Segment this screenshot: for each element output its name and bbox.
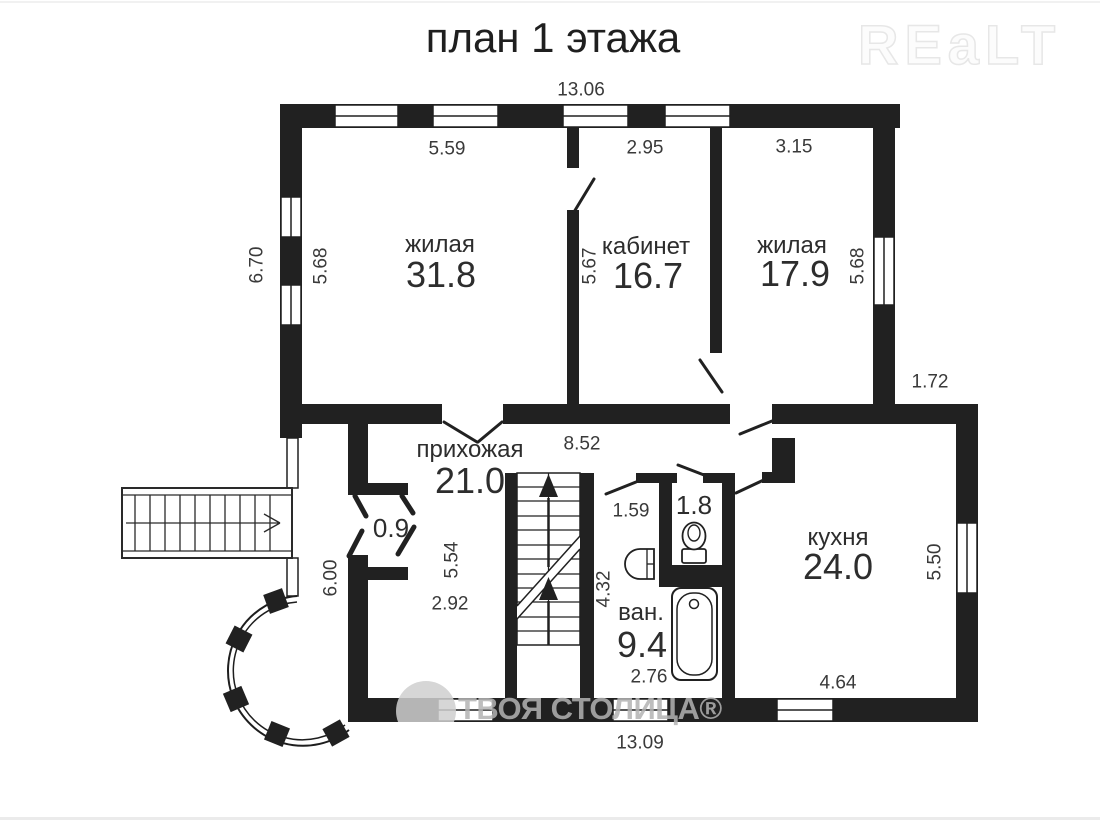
dim-bath-width: 2.76: [631, 668, 668, 687]
top-edge-line: [0, 1, 1100, 3]
wall-hall-step-bottom: [368, 567, 408, 580]
window-top-4: [665, 105, 730, 127]
dim-bath-door-width: 1.59: [613, 502, 650, 521]
watermark-logo-circle: [396, 681, 456, 741]
door-kitchen-upper: [740, 421, 772, 434]
wall-middle-right: [772, 404, 873, 424]
dim-bottom-width: 13.09: [616, 734, 664, 753]
door-living1-office: [574, 179, 594, 212]
room-area-kitchen: 24.0: [803, 549, 873, 585]
interior-stairs: [517, 473, 580, 645]
dim-left-height: 6.70: [248, 247, 267, 284]
sink-icon: [625, 549, 654, 579]
window-left-2: [281, 285, 301, 325]
rotunda-outer-arc: [228, 596, 349, 746]
room-area-porch: 0.9: [373, 515, 409, 541]
room-label-bath: ван.: [618, 601, 664, 625]
rotunda-bay: [223, 588, 350, 747]
window-top-1: [335, 105, 398, 127]
room-area-bath: 9.4: [617, 627, 667, 663]
door-bath: [606, 482, 636, 494]
dim-living2-width: 3.15: [776, 138, 813, 157]
dim-living1-height: 5.68: [312, 248, 331, 285]
wall-stair-right: [580, 473, 594, 698]
rotunda-inner-arc: [233, 602, 345, 740]
dim-living1-width: 5.59: [429, 140, 466, 159]
wall-middle-b: [503, 404, 730, 424]
room-area-wc: 1.8: [676, 492, 712, 518]
door-wc: [678, 465, 704, 475]
wall-wc-south: [659, 565, 735, 587]
room-area-living1: 31.8: [406, 257, 476, 293]
dim-hall-inner-width: 2.92: [432, 595, 469, 614]
room-area-office: 16.7: [613, 258, 683, 294]
dim-right-step: 1.72: [912, 373, 949, 392]
dim-living2-height: 5.68: [849, 248, 868, 285]
door-kitchen-lower: [736, 478, 768, 493]
page-title: план 1 этажа: [426, 17, 681, 59]
dim-hall-inner-height: 5.54: [443, 542, 462, 579]
room-label-hall: прихожая: [417, 438, 524, 462]
floor-plan-canvas: REaLT: [0, 0, 1100, 825]
dim-office-width: 2.95: [627, 139, 664, 158]
door-office-living2: [700, 360, 722, 392]
toilet-icon: [682, 523, 706, 564]
rotunda-posts: [223, 588, 350, 747]
porch-wall-ne: [355, 496, 366, 516]
exterior-stairs: [122, 488, 292, 558]
dim-office-height: 5.67: [581, 248, 600, 285]
porch-wall-se: [402, 496, 413, 513]
porch-wall-nw: [349, 531, 362, 556]
bottom-edge-line: [0, 817, 1100, 820]
porch-screen-lower: [287, 558, 298, 596]
window-kitchen-east: [957, 523, 977, 593]
watermark-text: ТВОЯ СТОЛИЦА®: [458, 691, 722, 726]
wall-partition-living1-office-a: [567, 128, 579, 168]
floor-plan-page: REaLT: [0, 0, 1100, 825]
dim-bath-height: 4.32: [595, 571, 614, 608]
dim-kitchen-width: 4.64: [820, 674, 857, 693]
wall-partition-living1-office-b: [567, 210, 579, 404]
dim-hall-height: 6.00: [322, 560, 341, 597]
dim-kitchen-height: 5.50: [926, 544, 945, 581]
dim-hall-width: 8.52: [564, 435, 601, 454]
window-top-2: [433, 105, 498, 127]
watermark: ТВОЯ СТОЛИЦА®: [396, 681, 722, 741]
window-bottom-3: [777, 699, 833, 721]
window-right-upper: [874, 237, 894, 305]
bathtub-icon: [672, 588, 717, 680]
realt-logo: REaLT: [858, 13, 1061, 76]
wall-hall-step-top: [368, 483, 408, 495]
wall-partition-office-living2: [710, 128, 722, 353]
dim-top-width: 13.06: [557, 81, 605, 100]
wall-stair-left: [505, 473, 517, 698]
room-area-living2: 17.9: [760, 256, 830, 292]
wall-hall-west-upper: [348, 410, 368, 495]
porch-screen-upper: [287, 438, 298, 488]
room-area-hall: 21.0: [435, 463, 505, 499]
wall-hall-west-lower: [348, 555, 368, 705]
window-top-3: [563, 105, 628, 127]
wall-wc-north-a: [636, 473, 677, 483]
wall-left: [280, 104, 302, 438]
window-left-1: [281, 197, 301, 237]
